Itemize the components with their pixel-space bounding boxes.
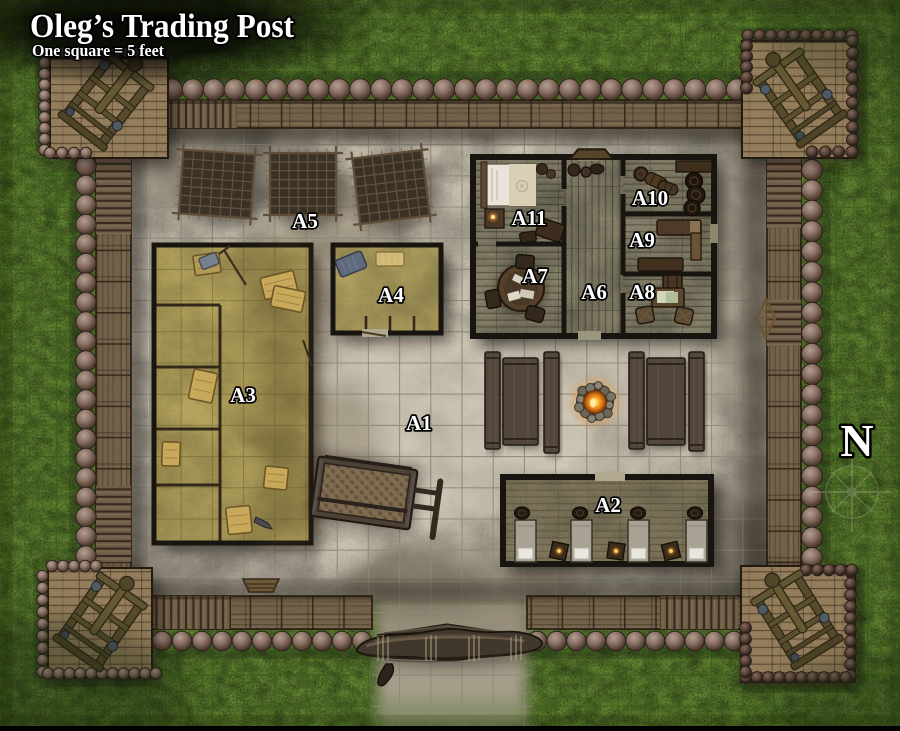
- svg-text:A5: A5: [292, 209, 318, 233]
- svg-text:A2: A2: [595, 493, 621, 517]
- svg-text:A10: A10: [632, 186, 668, 210]
- svg-text:A7: A7: [522, 264, 548, 288]
- svg-text:A11: A11: [511, 206, 546, 230]
- svg-text:A4: A4: [378, 283, 404, 307]
- svg-text:N: N: [840, 415, 873, 466]
- svg-text:One square = 5 feet: One square = 5 feet: [32, 41, 164, 60]
- svg-text:A8: A8: [629, 280, 655, 304]
- svg-text:A3: A3: [230, 383, 256, 407]
- svg-text:Oleg’s Trading Post: Oleg’s Trading Post: [30, 8, 295, 45]
- svg-text:A9: A9: [629, 228, 655, 252]
- svg-text:A6: A6: [581, 280, 607, 304]
- svg-text:A1: A1: [406, 411, 432, 435]
